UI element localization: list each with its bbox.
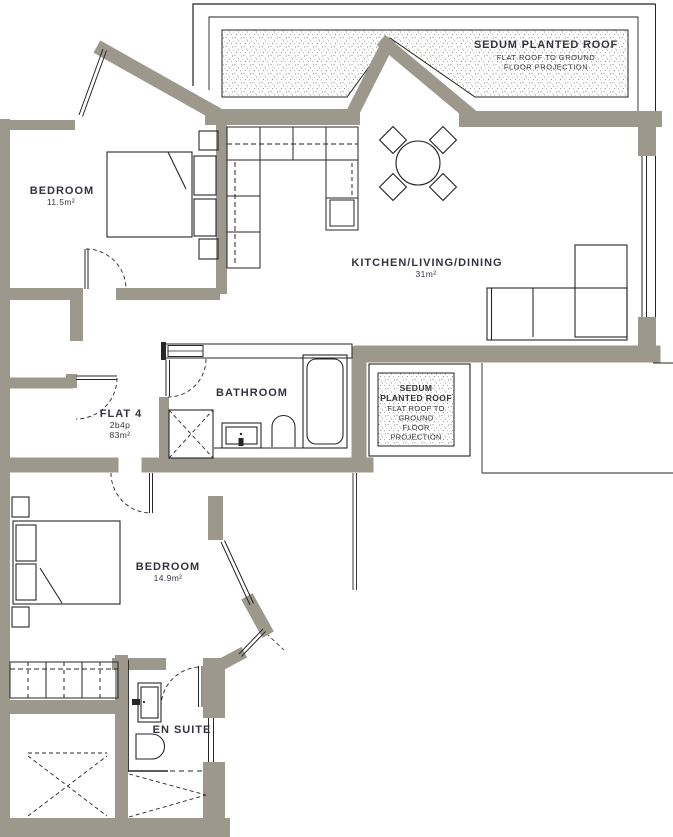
kitchen-units-symbol xyxy=(227,127,358,268)
bedroom2-label: BEDROOM xyxy=(136,561,200,573)
living-window xyxy=(642,156,647,317)
bedroom1-label: BEDROOM xyxy=(30,185,94,197)
tap-icon xyxy=(239,438,244,446)
bedroom2-area: 14.9m² xyxy=(154,573,183,583)
door-jamb xyxy=(161,342,166,360)
bathroom-door xyxy=(166,359,206,397)
sedum-roof-mid-l4: GROUND xyxy=(398,414,433,423)
chair xyxy=(430,127,457,154)
bedside-table xyxy=(199,131,218,150)
bathroom-fixtures xyxy=(169,355,347,458)
sedum-roof-mid-l1: SEDUM xyxy=(400,383,433,393)
ensuite-fixtures xyxy=(128,660,206,817)
toilet-symbol xyxy=(136,734,165,759)
chair xyxy=(430,174,457,201)
projection-outline xyxy=(256,4,673,650)
flat-spec: 2b4p xyxy=(110,420,131,430)
bedside-table xyxy=(12,607,29,627)
bedroom1-area: 11.5m² xyxy=(47,197,75,207)
void-area-symbol xyxy=(28,753,107,816)
shower-symbol xyxy=(129,774,206,817)
bedroom1-window xyxy=(79,49,107,117)
bathroom-label: BATHROOM xyxy=(216,387,288,399)
wall-piers xyxy=(0,113,656,837)
floor-plan: SEDUM PLANTED ROOF FLAT ROOF TO GROUND F… xyxy=(0,0,673,837)
ensuite-door xyxy=(161,666,202,707)
bedroom2-bed-symbol xyxy=(12,497,120,627)
flat-area: 83m² xyxy=(110,430,131,440)
wardrobe-symbol xyxy=(10,662,118,698)
chair xyxy=(380,127,407,154)
sofa-symbol xyxy=(487,245,627,340)
kitchen-label: KITCHEN/LIVING/DINING xyxy=(351,257,502,269)
bathroom-partition xyxy=(161,342,352,360)
kitchen-area: 31m² xyxy=(416,269,437,279)
sedum-roof-top-sub1: FLAT ROOF TO GROUND xyxy=(497,53,596,62)
bedside-table xyxy=(12,497,29,517)
tap-icon xyxy=(132,699,140,705)
sedum-roof-mid-l3: FLAT ROOF TO xyxy=(387,404,444,413)
chair xyxy=(380,174,407,201)
bedroom2-door xyxy=(111,473,153,513)
bedroom2-bay-window-1 xyxy=(221,541,254,606)
ensuite-label: EN SUITE xyxy=(153,724,212,736)
bedside-table xyxy=(199,239,218,259)
toilet-symbol xyxy=(272,416,295,448)
dining-table-symbol xyxy=(380,127,457,201)
sedum-roof-top-sub2: FLOOR PROJECTION xyxy=(504,63,588,72)
flat-name: FLAT 4 xyxy=(100,408,142,420)
bathtub-symbol xyxy=(303,355,347,448)
floor-plan-svg: SEDUM PLANTED ROOF FLAT ROOF TO GROUND F… xyxy=(0,0,673,837)
doors xyxy=(76,249,206,707)
sedum-roof-top-title: SEDUM PLANTED ROOF xyxy=(474,39,618,51)
bedroom1-bed-symbol xyxy=(107,131,218,259)
bedroom1-door xyxy=(85,249,126,289)
sedum-roof-mid-l5: FLOOR xyxy=(402,423,430,432)
sedum-roof-mid-l6: PROJECTION xyxy=(390,433,441,442)
sedum-roof-mid-l2: PLANTED ROOF xyxy=(380,393,452,403)
